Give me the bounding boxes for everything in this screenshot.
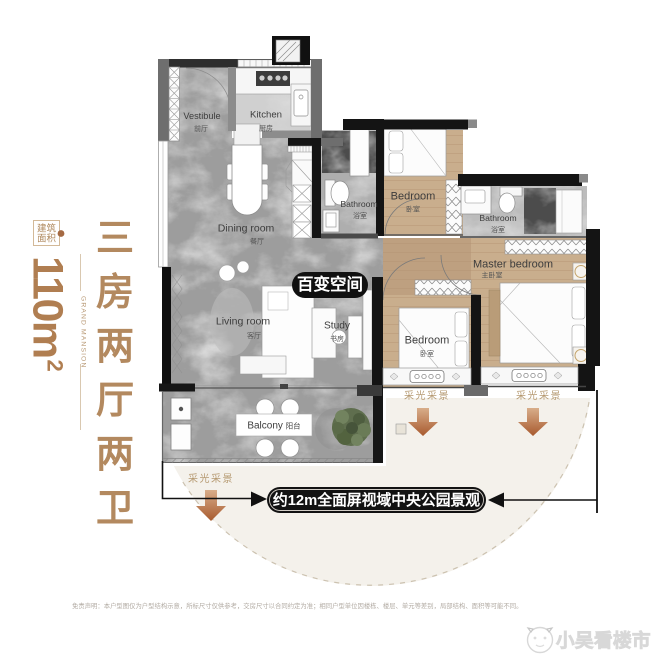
svg-text:浴室: 浴室 [491,225,505,234]
svg-text:Living room: Living room [216,316,271,328]
svg-text:厅: 厅 [96,380,134,422]
svg-text:110m: 110m [24,256,72,358]
svg-text:采光采景: 采光采景 [188,472,234,485]
svg-text:GRAND MANSION: GRAND MANSION [80,296,87,368]
svg-text:客厅: 客厅 [247,331,261,340]
svg-text:面积: 面积 [37,233,57,245]
svg-text:采光采景: 采光采景 [516,389,562,402]
svg-text:采光采景: 采光采景 [404,389,450,402]
svg-text:书房: 书房 [330,334,344,343]
svg-text:主卧室: 主卧室 [482,271,503,280]
svg-text:Bathroom: Bathroom [340,199,377,209]
svg-text:餐厅: 餐厅 [250,237,264,246]
svg-text:Study: Study [324,321,351,332]
svg-text:两: 两 [96,326,134,368]
svg-text:Master bedroom: Master bedroom [473,259,553,271]
svg-text:Bedroom: Bedroom [405,335,450,347]
svg-text:Bathroom: Bathroom [479,213,516,223]
svg-text:房: 房 [96,272,134,314]
svg-text:Dining room: Dining room [218,223,275,235]
svg-text:厨房: 厨房 [259,124,273,133]
svg-text:卫: 卫 [96,488,134,530]
svg-text:三: 三 [96,218,134,260]
svg-text:卧室: 卧室 [420,349,434,358]
svg-text:卧室: 卧室 [406,205,420,214]
svg-text:浴室: 浴室 [353,211,367,220]
svg-text:Kitchen: Kitchen [250,110,282,121]
svg-text:小吴看楼市: 小吴看楼市 [556,630,651,651]
svg-text:Vestibule: Vestibule [183,111,220,121]
svg-text:免责声明：本户型图仅为户型结构示意，所标尺寸仅供参考，交房尺: 免责声明：本户型图仅为户型结构示意，所标尺寸仅供参考，交房尺寸以合同约定为准；相… [72,601,522,610]
svg-text:Bedroom: Bedroom [391,191,436,203]
svg-text:约12m全面屏视域中央公园景观: 约12m全面屏视域中央公园景观 [273,491,480,509]
svg-text:2: 2 [43,360,68,372]
svg-text:两: 两 [96,434,134,476]
svg-text:百变空间: 百变空间 [297,274,363,294]
svg-text:Balcony 阳台: Balcony 阳台 [247,421,300,432]
svg-text:前厅: 前厅 [194,124,208,133]
